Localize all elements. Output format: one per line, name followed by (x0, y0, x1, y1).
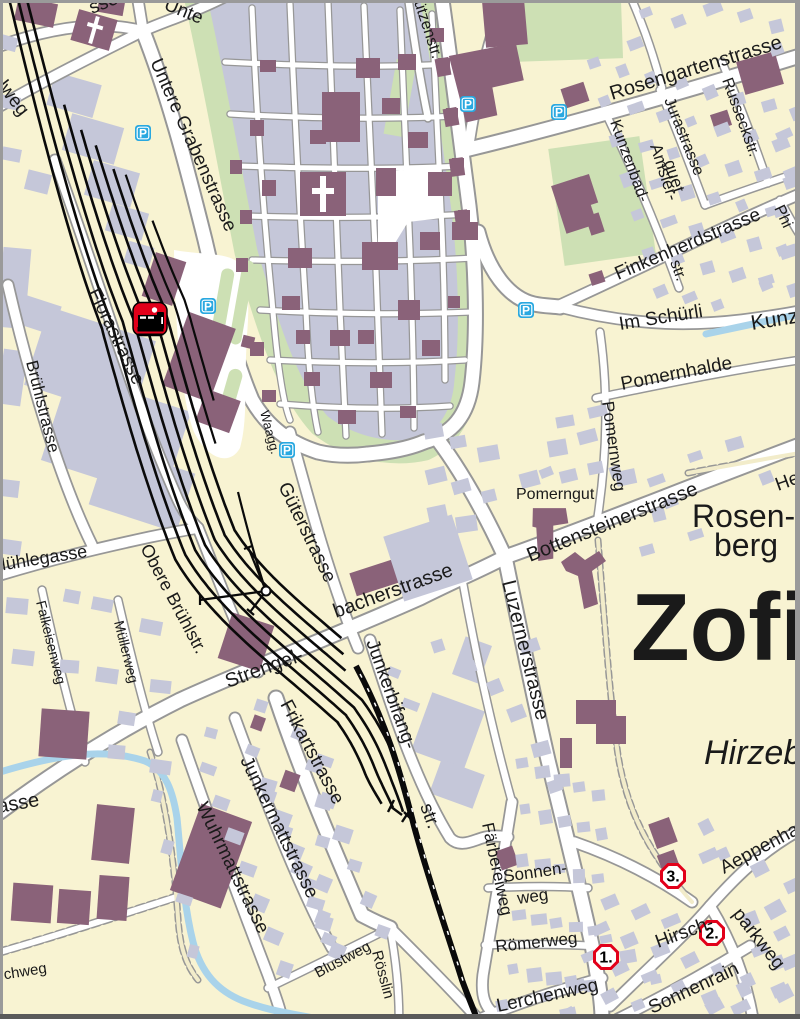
svg-text:Hirzebach: Hirzebach (704, 734, 800, 772)
svg-text:P: P (555, 105, 563, 119)
svg-text:P: P (204, 299, 212, 313)
svg-text:P: P (522, 303, 530, 317)
svg-text:P: P (464, 97, 472, 111)
svg-text:3.: 3. (666, 869, 679, 886)
svg-text:P: P (283, 443, 291, 457)
svg-text:Zofingen: Zofingen (631, 574, 800, 681)
svg-text:1.: 1. (599, 950, 612, 967)
svg-text:Pomerngut: Pomerngut (516, 486, 595, 503)
svg-text:berg: berg (714, 527, 778, 563)
svg-text:P: P (139, 126, 147, 140)
